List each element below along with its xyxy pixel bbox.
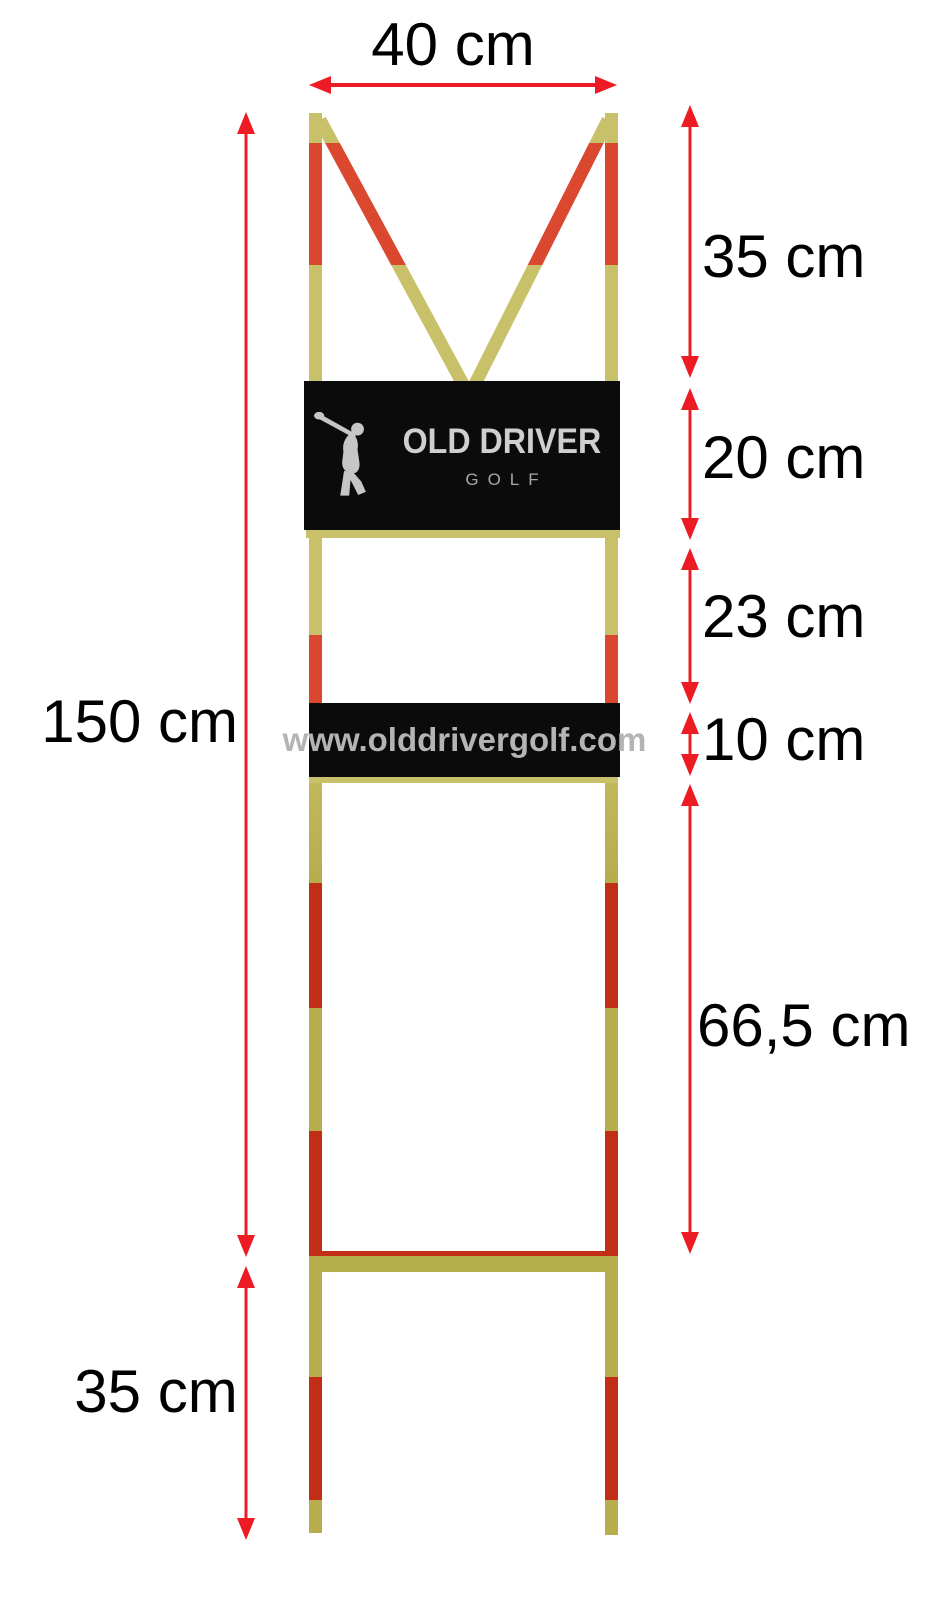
dimension-arrows [237, 76, 699, 1540]
diagram-canvas: OLD DRIVER GOLF www.olddrivergolf.com 40… [0, 0, 932, 1600]
dimension-label-ground-stake: 35 cm [74, 1362, 237, 1422]
dimension-label-url-section: 10 cm [702, 710, 865, 770]
brand-title: OLD DRIVER [403, 422, 602, 462]
brand-text-block: OLD DRIVER GOLF [394, 422, 610, 490]
v-brace-left [320, 120, 464, 386]
golfer-swing-icon [314, 409, 378, 503]
dimension-label-open-section: 23 cm [702, 587, 865, 647]
dimension-label-top-width: 40 cm [371, 15, 534, 75]
dimension-label-banner-section: 20 cm [702, 428, 865, 488]
dimension-label-top-v-section: 35 cm [702, 227, 865, 287]
dimension-label-lower-section: 66,5 cm [697, 996, 910, 1056]
dimension-top-width [309, 76, 617, 94]
dimension-top-v-section [681, 105, 699, 378]
dimension-banner-section [681, 388, 699, 540]
brand-subtitle: GOLF [456, 470, 547, 490]
ground-rung [309, 1256, 618, 1272]
ground-rung-edge [309, 1251, 618, 1256]
dimension-url-section [681, 712, 699, 776]
dimension-label-total-height: 150 cm [41, 692, 238, 752]
dimension-open-section [681, 548, 699, 704]
dimension-total-height [237, 112, 255, 1257]
right-pole [605, 113, 618, 1535]
left-pole [309, 113, 322, 1533]
url-banner: www.olddrivergolf.com [309, 703, 620, 777]
url-text: www.olddrivergolf.com [283, 721, 647, 759]
brand-banner: OLD DRIVER GOLF [304, 381, 620, 530]
v-brace-right [474, 120, 608, 386]
dimension-ground-stake [237, 1266, 255, 1540]
